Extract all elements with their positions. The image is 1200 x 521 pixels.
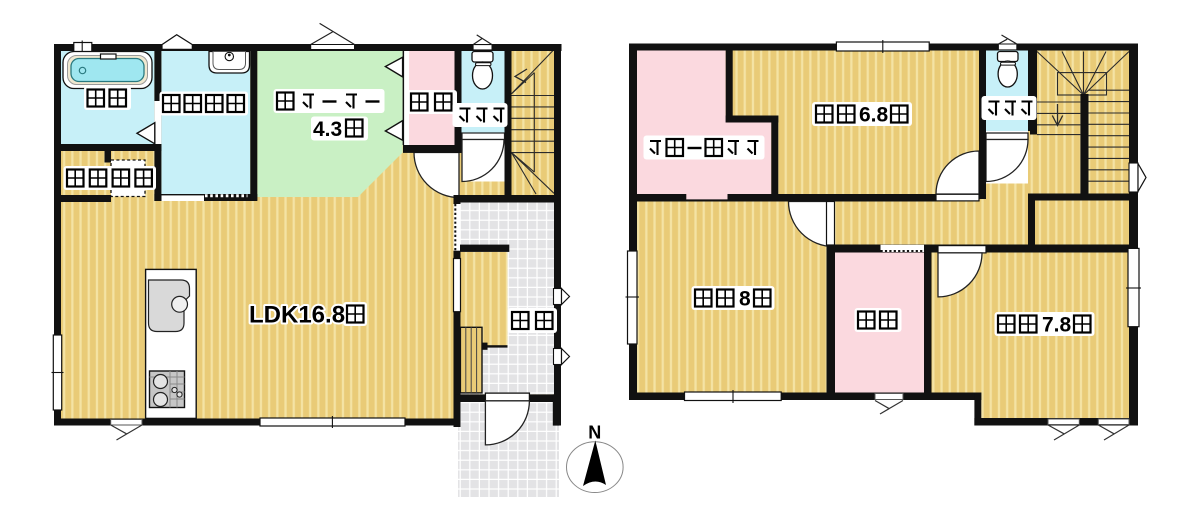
svg-text:4.3: 4.3 xyxy=(313,118,342,141)
svg-text:N: N xyxy=(588,423,601,443)
svg-text:LDK16.8: LDK16.8 xyxy=(249,302,345,329)
svg-text:8: 8 xyxy=(739,288,751,311)
svg-text:6.8: 6.8 xyxy=(859,104,889,127)
svg-text:7.8: 7.8 xyxy=(1042,314,1072,337)
